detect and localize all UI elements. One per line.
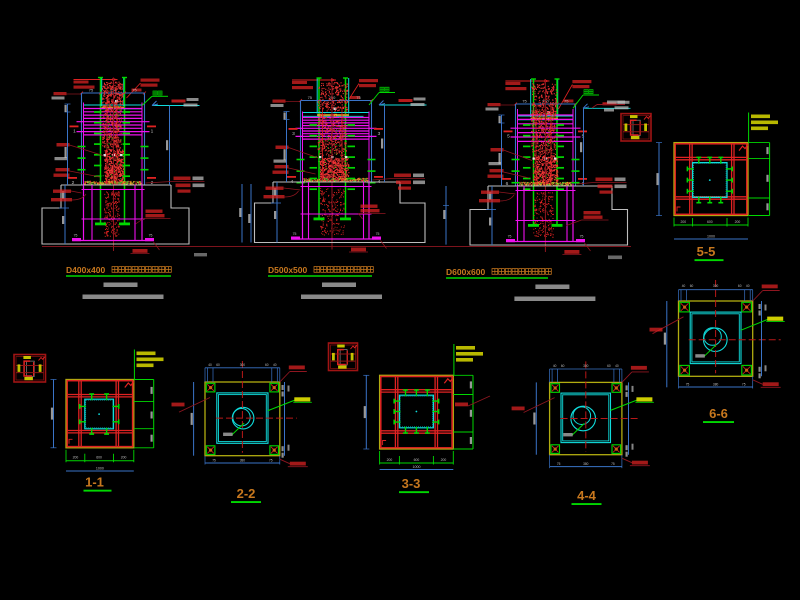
svg-text:75: 75 [293, 232, 297, 236]
svg-text:200: 200 [441, 458, 447, 462]
svg-text:60: 60 [561, 364, 565, 368]
svg-text:1000: 1000 [707, 235, 715, 239]
svg-text:3-3: 3-3 [402, 476, 421, 491]
svg-text:D500x500: D500x500 [268, 265, 308, 275]
svg-text:200: 200 [387, 458, 393, 462]
svg-text:75: 75 [308, 95, 313, 100]
svg-text:200: 200 [121, 456, 127, 460]
svg-text:380: 380 [583, 462, 589, 466]
svg-text:300: 300 [713, 284, 719, 288]
svg-text:75: 75 [580, 235, 584, 239]
svg-text:600: 600 [96, 456, 102, 460]
svg-text:1-1: 1-1 [85, 475, 104, 490]
svg-text:75: 75 [212, 459, 216, 463]
svg-text:60: 60 [216, 363, 220, 367]
svg-text:75: 75 [564, 99, 569, 104]
svg-text:75: 75 [149, 234, 153, 238]
svg-text:200: 200 [73, 456, 79, 460]
svg-text:380: 380 [713, 383, 719, 387]
svg-text:75: 75 [686, 383, 690, 387]
svg-text:1: 1 [73, 129, 76, 135]
svg-text:40: 40 [746, 284, 750, 288]
svg-text:40: 40 [682, 284, 686, 288]
svg-text:75: 75 [522, 99, 527, 104]
svg-text:D600x600: D600x600 [446, 267, 486, 277]
svg-text:40: 40 [208, 363, 212, 367]
svg-text:6-6: 6-6 [709, 406, 728, 421]
svg-text:60: 60 [690, 284, 694, 288]
svg-text:3: 3 [378, 131, 381, 137]
svg-text:D400x400: D400x400 [66, 265, 106, 275]
svg-text:200: 200 [735, 220, 741, 224]
svg-text:1000: 1000 [413, 465, 421, 469]
svg-text:40: 40 [273, 363, 277, 367]
svg-text:380: 380 [240, 459, 246, 463]
svg-text:75: 75 [376, 232, 380, 236]
svg-text:60: 60 [265, 363, 269, 367]
svg-text:75: 75 [269, 459, 273, 463]
svg-text:600: 600 [414, 458, 420, 462]
svg-text:75: 75 [132, 88, 137, 93]
svg-text:60: 60 [738, 284, 742, 288]
svg-text:75: 75 [742, 383, 746, 387]
svg-text:40: 40 [553, 364, 557, 368]
svg-text:1000: 1000 [96, 467, 104, 471]
svg-text:200: 200 [680, 220, 686, 224]
svg-text:300: 300 [583, 364, 589, 368]
svg-text:2-2: 2-2 [237, 486, 256, 501]
svg-text:5-5: 5-5 [697, 244, 716, 259]
svg-text:75: 75 [557, 462, 561, 466]
svg-text:1: 1 [151, 129, 154, 135]
svg-text:60: 60 [607, 364, 611, 368]
svg-text:3: 3 [292, 131, 295, 137]
svg-text:75: 75 [356, 95, 361, 100]
svg-text:5: 5 [507, 134, 510, 140]
svg-text:75: 75 [508, 235, 512, 239]
svg-text:300: 300 [240, 363, 246, 367]
svg-text:4-4: 4-4 [577, 488, 597, 503]
svg-text:75: 75 [611, 462, 615, 466]
svg-text:600: 600 [707, 220, 713, 224]
svg-text:75: 75 [74, 234, 78, 238]
svg-text:75: 75 [89, 88, 94, 93]
svg-text:40: 40 [615, 364, 619, 368]
